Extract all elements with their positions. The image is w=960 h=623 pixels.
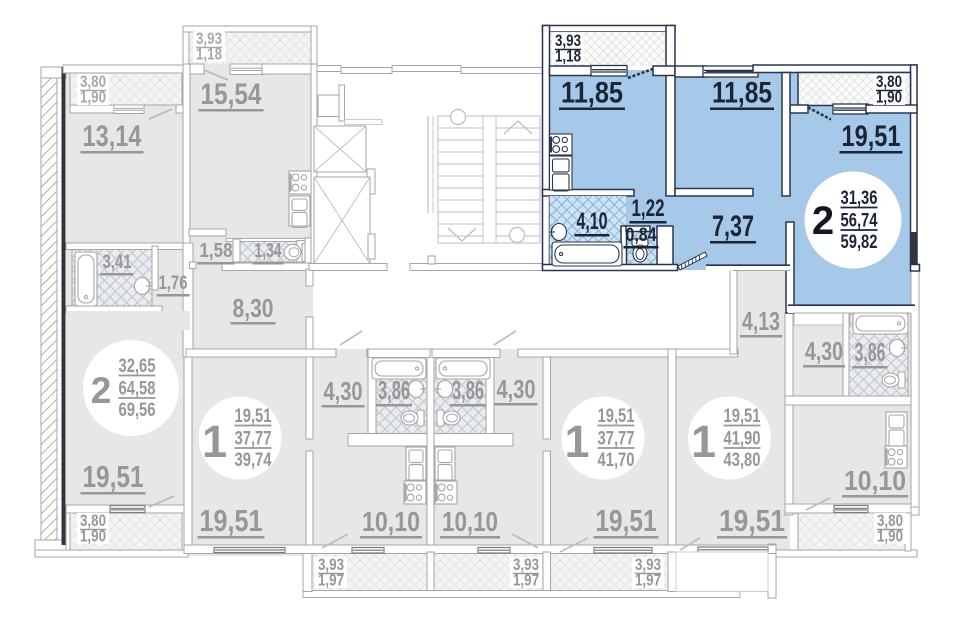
svg-text:3,86: 3,86 (452, 375, 484, 405)
svg-text:43,80: 43,80 (724, 449, 761, 471)
svg-text:19,51: 19,51 (200, 503, 263, 538)
svg-text:37,77: 37,77 (598, 428, 635, 450)
svg-text:1,90: 1,90 (876, 88, 902, 107)
svg-text:10,10: 10,10 (442, 506, 498, 537)
svg-text:1,90: 1,90 (80, 527, 106, 546)
svg-text:56,74: 56,74 (841, 210, 878, 232)
svg-text:2: 2 (91, 370, 112, 411)
svg-text:0,84: 0,84 (626, 225, 657, 246)
svg-text:41,90: 41,90 (724, 428, 761, 450)
svg-text:4,30: 4,30 (324, 376, 363, 406)
svg-text:1: 1 (564, 416, 589, 467)
svg-text:1,18: 1,18 (196, 45, 222, 64)
svg-text:3,86: 3,86 (378, 375, 410, 405)
svg-text:32,65: 32,65 (119, 355, 156, 377)
svg-text:3,41: 3,41 (103, 252, 132, 273)
svg-text:1,90: 1,90 (80, 88, 106, 107)
svg-text:1,34: 1,34 (255, 240, 283, 262)
svg-text:11,85: 11,85 (561, 77, 623, 110)
svg-text:19,51: 19,51 (598, 405, 635, 427)
svg-text:1,58: 1,58 (200, 240, 233, 262)
svg-text:64,58: 64,58 (119, 378, 156, 400)
svg-text:4,30: 4,30 (497, 374, 536, 404)
svg-text:1,22: 1,22 (632, 195, 665, 222)
svg-text:19,51: 19,51 (842, 120, 901, 153)
svg-text:31,36: 31,36 (841, 187, 878, 209)
svg-text:41,70: 41,70 (598, 449, 635, 471)
svg-text:1,97: 1,97 (513, 571, 539, 590)
svg-text:13,14: 13,14 (83, 120, 142, 153)
svg-text:4,13: 4,13 (742, 306, 780, 336)
svg-text:1,97: 1,97 (635, 571, 661, 590)
svg-text:1,90: 1,90 (877, 527, 903, 546)
svg-text:7,37: 7,37 (712, 210, 754, 243)
svg-text:19,51: 19,51 (235, 405, 272, 427)
svg-text:19,51: 19,51 (83, 459, 144, 494)
svg-text:15,54: 15,54 (201, 78, 262, 111)
svg-text:19,51: 19,51 (719, 503, 785, 538)
svg-text:1,97: 1,97 (318, 571, 344, 590)
svg-text:8,30: 8,30 (233, 293, 274, 323)
svg-text:11,85: 11,85 (712, 77, 772, 110)
svg-text:3,86: 3,86 (855, 337, 886, 367)
svg-text:39,74: 39,74 (235, 449, 272, 471)
svg-text:69,56: 69,56 (119, 399, 156, 421)
svg-text:1,76: 1,76 (159, 273, 188, 294)
svg-text:10,10: 10,10 (362, 506, 420, 537)
svg-text:59,82: 59,82 (841, 231, 878, 253)
svg-text:1: 1 (202, 416, 227, 467)
svg-text:19,51: 19,51 (724, 405, 761, 427)
svg-text:2: 2 (812, 199, 834, 243)
svg-text:1,18: 1,18 (555, 47, 581, 66)
svg-text:19,51: 19,51 (596, 503, 657, 538)
svg-text:1: 1 (691, 416, 716, 467)
svg-text:4,10: 4,10 (577, 208, 608, 235)
svg-text:10,10: 10,10 (844, 465, 906, 496)
svg-text:37,77: 37,77 (235, 428, 272, 450)
svg-text:4,30: 4,30 (805, 336, 843, 366)
